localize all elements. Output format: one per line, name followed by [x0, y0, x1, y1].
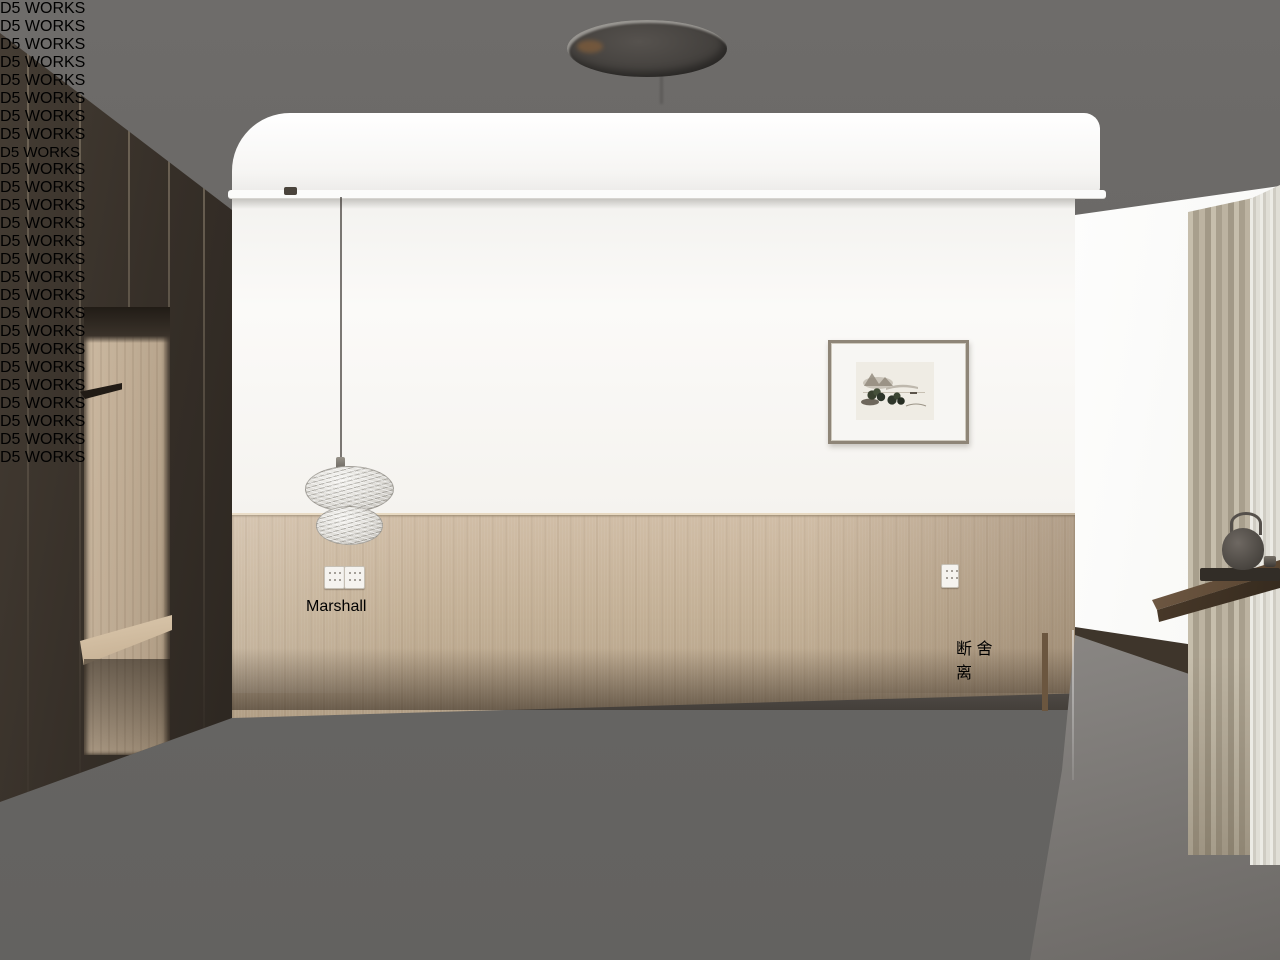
bench-seat-cap	[854, 741, 922, 769]
watermark-text: D5 WORKS	[0, 179, 85, 196]
watermark-item: D5 WORKS	[0, 144, 85, 161]
light-canopy	[232, 113, 1100, 193]
bench-seat	[426, 741, 922, 773]
watermark-item: D5 WORKS	[0, 431, 85, 449]
watermark-text: D5 WORKS	[0, 431, 85, 448]
canopy-shadow	[232, 199, 1075, 209]
watermark-item: D5 WORKS	[0, 341, 85, 359]
watermark-item: D5 WORKS	[0, 215, 85, 233]
canopy-base	[228, 190, 1106, 199]
watermark-text: D5 WORKS	[0, 287, 85, 304]
duvet	[330, 650, 988, 818]
outlet-slots	[946, 570, 948, 572]
throw-blanket	[372, 614, 908, 662]
watermark-item: D5 WORKS	[0, 323, 85, 341]
watermark-text: D5 WORKS	[0, 305, 85, 322]
watermark-text: D5 WORKS	[0, 54, 85, 71]
watermark-item: D5 WORKS	[0, 90, 85, 108]
watermark-text: D5 WORKS	[0, 161, 85, 178]
watermark-item: D5 WORKS	[0, 161, 85, 179]
pendant-glass-lower	[316, 506, 383, 545]
watermark-item: D5 WORKS	[0, 54, 85, 72]
watermark-text: D5 WORKS	[0, 0, 85, 17]
watermark-item: D5 WORKS	[0, 305, 85, 323]
pillow-left	[467, 554, 631, 624]
watermark-text: D5 WORKS	[0, 233, 85, 250]
watermark-item: D5 WORKS	[0, 251, 85, 269]
watermark-item: D5 WORKS	[0, 36, 85, 54]
niche-top-shadow	[84, 307, 170, 343]
watermark-text: D5 WORKS	[0, 413, 85, 430]
watermark-item: D5 WORKS	[0, 126, 85, 144]
watermark-layer: D5 WORKS D5 WORKS D5 WORKS D5 WORKS D5 W…	[0, 0, 85, 467]
watermark-item: D5 WORKS	[0, 0, 85, 18]
outlet-slots	[329, 572, 331, 574]
ceiling-lamp-glint	[577, 40, 603, 53]
watermark-item: D5 WORKS	[0, 179, 85, 197]
speaker-brand-label: Marshall	[306, 598, 364, 617]
watermark-text: D5 WORKS	[0, 36, 85, 53]
throw-stitch-line	[380, 642, 900, 644]
watermark-text: D5 WORKS	[0, 197, 85, 214]
watermark-item: D5 WORKS	[0, 18, 85, 36]
chair-seat-rail	[84, 680, 216, 688]
watermark-text: D5 WORKS	[0, 323, 85, 340]
folded-pillow-right	[839, 569, 893, 620]
watermark-item: D5 WORKS	[0, 197, 85, 215]
table-lamp-base	[957, 562, 988, 626]
watermark-text: D5 WORKS	[0, 395, 85, 412]
nightstand-side	[1042, 633, 1048, 711]
wardrobe-seam	[203, 187, 205, 728]
wall-art-frame	[828, 340, 969, 444]
watermark-item: D5 WORKS	[0, 449, 85, 467]
watermark-text: D5 WORKS	[0, 269, 85, 286]
watermark-item: D5 WORKS	[0, 269, 85, 287]
pendant-cord	[340, 197, 342, 459]
nightstand-leg	[1025, 710, 1036, 742]
watermark-text: D5 WORKS	[0, 126, 85, 143]
watermark-text: D5 WORKS	[0, 144, 80, 161]
bench-woven-top	[466, 744, 858, 770]
watermark-text: D5 WORKS	[0, 449, 85, 466]
watermark-text: D5 WORKS	[0, 90, 85, 107]
watermark-item: D5 WORKS	[0, 233, 85, 251]
watermark-text: D5 WORKS	[0, 108, 85, 125]
sheet-spill-left	[268, 700, 428, 840]
ceiling-lamp-reflection	[660, 76, 663, 104]
watermark-text: D5 WORKS	[0, 215, 85, 232]
watermark-text: D5 WORKS	[0, 359, 85, 376]
bench-shadow	[440, 868, 880, 892]
watermark-text: D5 WORKS	[0, 18, 85, 35]
watermark-text: D5 WORKS	[0, 377, 85, 394]
outlet-slots	[349, 572, 351, 574]
ink-landscape-painting	[856, 362, 934, 420]
watermark-item: D5 WORKS	[0, 377, 85, 395]
floor-plank-line	[1, 928, 276, 952]
watermark-text: D5 WORKS	[0, 72, 85, 89]
watermark-text: D5 WORKS	[0, 341, 85, 358]
table-lamp-shade	[927, 506, 1015, 566]
watermark-text: D5 WORKS	[0, 251, 85, 268]
bench-stretcher	[498, 776, 838, 790]
rug-fringe	[58, 812, 208, 912]
watermark-item: D5 WORKS	[0, 359, 85, 377]
watermark-item: D5 WORKS	[0, 108, 85, 126]
watermark-item: D5 WORKS	[0, 413, 85, 431]
watermark-item: D5 WORKS	[0, 287, 85, 305]
watermark-item: D5 WORKS	[0, 72, 85, 90]
tea-cup	[1264, 556, 1276, 567]
watermark-item: D5 WORKS	[0, 395, 85, 413]
pillow-right	[647, 552, 815, 624]
knit-drape-right	[928, 638, 1004, 768]
bedroom-render: Marshall 断 舍 离	[0, 0, 1280, 960]
pendant-ceiling-mount	[284, 187, 297, 195]
marshall-speaker: Marshall	[302, 594, 368, 623]
teapot	[1222, 528, 1264, 570]
